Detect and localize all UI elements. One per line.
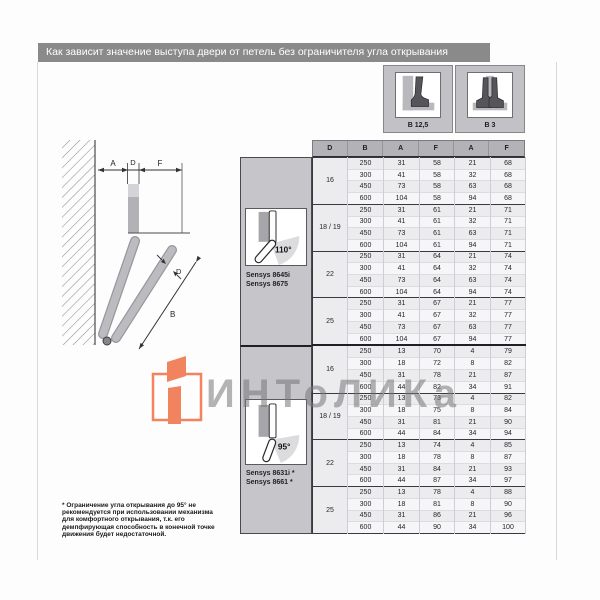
value-cell: 73 [384,181,420,193]
value-cell: 13 [384,487,420,499]
value-cell: 21 [455,416,491,428]
value-cell: 73 [384,321,420,333]
value-cell: 450 [348,275,384,287]
value-cell: 18 [384,498,420,510]
door-thickness-cell: 22 [313,251,348,298]
value-cell: 300 [348,310,384,322]
value-cell: 34 [455,475,491,487]
data-table: 1625031582168300415832684507358636860010… [312,157,526,534]
door-thickness-cell: 16 [313,158,348,205]
overlay-hinge-icon [395,72,441,118]
value-cell: 300 [348,263,384,275]
value-cell: 81 [420,498,455,510]
value-cell: 85 [491,440,526,452]
value-cell: 450 [348,370,384,382]
value-cell: 600 [348,239,384,251]
value-cell: 64 [420,251,455,263]
door-thickness-cell: 18 / 19 [313,393,348,440]
value-cell: 97 [491,475,526,487]
value-cell: 8 [455,498,491,510]
angle-110-icon: 110° [245,208,307,266]
value-cell: 44 [384,381,420,393]
value-cell: 58 [420,158,455,170]
table-row: 2525031672177 [313,298,526,310]
value-cell: 71 [491,239,526,251]
value-cell: 450 [348,321,384,333]
value-cell: 90 [491,498,526,510]
value-cell: 61 [420,239,455,251]
value-cell: 77 [491,333,526,345]
value-cell: 300 [348,405,384,417]
value-cell: 61 [420,228,455,240]
value-cell: 41 [384,169,420,181]
value-cell: 67 [420,298,455,310]
value-cell: 31 [384,204,420,216]
value-cell: 600 [348,286,384,298]
value-cell: 87 [491,370,526,382]
table-header-cell: F [489,141,524,156]
value-cell: 31 [384,298,420,310]
value-cell: 18 [384,358,420,370]
value-cell: 67 [420,333,455,345]
value-cell: 104 [384,193,420,205]
value-cell: 21 [455,251,491,263]
model-name: Sensys 8661 * [246,479,295,488]
value-cell: 250 [348,298,384,310]
hinge-variant-box-b3: B 3 [455,65,525,133]
value-cell: 64 [420,286,455,298]
value-cell: 77 [491,310,526,322]
value-cell: 86 [420,510,455,522]
value-cell: 100 [491,522,526,534]
door-thickness-cell: 25 [313,487,348,534]
value-cell: 84 [491,405,526,417]
hinge-variant-label: B 3 [456,122,524,129]
value-cell: 250 [348,158,384,170]
value-cell: 87 [420,475,455,487]
value-cell: 61 [420,216,455,228]
value-cell: 450 [348,181,384,193]
value-cell: 4 [455,345,491,357]
table-row: 18 / 1925031612171 [313,204,526,216]
value-cell: 68 [491,193,526,205]
wall-hatch [62,140,95,345]
value-cell: 44 [384,475,420,487]
value-cell: 600 [348,428,384,440]
value-cell: 21 [455,298,491,310]
value-cell: 104 [384,239,420,251]
table-header-cell: B [348,141,384,156]
value-cell: 34 [455,522,491,534]
right-margin-rule [556,62,557,560]
twin-hinge-icon [467,72,513,118]
value-cell: 78 [420,487,455,499]
value-cell: 32 [455,216,491,228]
value-cell: 8 [455,452,491,464]
table-header-cell: F [419,141,454,156]
value-cell: 63 [455,275,491,287]
value-cell: 81 [420,416,455,428]
value-cell: 13 [384,345,420,357]
value-cell: 82 [420,381,455,393]
value-cell: 68 [491,169,526,181]
value-cell: 68 [491,158,526,170]
table-row: 252501378488 [313,487,526,499]
value-cell: 64 [420,275,455,287]
angle-label-110: 110° [275,245,291,254]
value-cell: 91 [491,381,526,393]
door-projection-diagram: A D F D B [50,130,220,390]
table-row: 2225031642174 [313,251,526,263]
value-cell: 32 [455,310,491,322]
value-cell: 74 [491,263,526,275]
value-cell: 94 [455,286,491,298]
value-cell: 58 [420,181,455,193]
model-name: Sensys 8631i * [246,470,295,479]
value-cell: 34 [455,381,491,393]
value-cell: 84 [420,463,455,475]
value-cell: 74 [491,286,526,298]
value-cell: 31 [384,158,420,170]
dim-label-d-door: D [176,267,182,276]
value-cell: 74 [491,251,526,263]
angle-95-icon: 95° [245,399,307,465]
value-cell: 63 [455,181,491,193]
value-cell: 31 [384,416,420,428]
value-cell: 94 [455,193,491,205]
value-cell: 600 [348,333,384,345]
value-cell: 450 [348,416,384,428]
value-cell: 74 [491,275,526,287]
value-cell: 73 [384,228,420,240]
value-cell: 41 [384,310,420,322]
value-cell: 84 [420,428,455,440]
value-cell: 82 [491,358,526,370]
table-row: 18 / 192501373482 [313,393,526,405]
value-cell: 250 [348,204,384,216]
value-cell: 93 [491,463,526,475]
value-cell: 450 [348,463,384,475]
value-cell: 600 [348,475,384,487]
value-cell: 18 [384,405,420,417]
value-cell: 13 [384,440,420,452]
value-cell: 58 [420,193,455,205]
value-cell: 104 [384,333,420,345]
value-cell: 31 [384,463,420,475]
value-cell: 600 [348,522,384,534]
value-cell: 21 [455,463,491,475]
value-cell: 450 [348,510,384,522]
table-row: 1625031582168 [313,158,526,170]
value-cell: 87 [491,452,526,464]
table-header-cell: D [313,141,348,156]
value-cell: 44 [384,428,420,440]
value-cell: 73 [420,393,455,405]
value-cell: 250 [348,393,384,405]
value-cell: 88 [491,487,526,499]
value-cell: 58 [420,169,455,181]
value-cell: 73 [384,275,420,287]
value-cell: 300 [348,498,384,510]
value-cell: 250 [348,440,384,452]
value-cell: 300 [348,169,384,181]
value-cell: 4 [455,487,491,499]
value-cell: 4 [455,393,491,405]
table-header: DBAFAF [312,140,525,158]
value-cell: 67 [420,321,455,333]
value-cell: 250 [348,251,384,263]
value-cell: 71 [491,204,526,216]
value-cell: 300 [348,452,384,464]
hinge-variant-box-b125: B 12,5 [383,65,453,133]
value-cell: 68 [491,181,526,193]
value-cell: 250 [348,487,384,499]
catalog-page: Как зависит значение выступа двери от пе… [0,0,600,600]
value-cell: 8 [455,405,491,417]
hinge-pivot [103,337,111,345]
value-cell: 79 [491,345,526,357]
value-cell: 21 [455,204,491,216]
table-header-cell: A [383,141,419,156]
value-cell: 75 [420,405,455,417]
angle-label-95: 95° [278,442,290,451]
door-thickness-cell: 22 [313,440,348,487]
value-cell: 32 [455,169,491,181]
value-cell: 63 [455,321,491,333]
table-header-cell: A [454,141,490,156]
value-cell: 94 [455,239,491,251]
value-cell: 31 [384,510,420,522]
dim-label-a: A [110,159,116,168]
value-cell: 21 [455,510,491,522]
value-cell: 104 [384,286,420,298]
value-cell: 18 [384,452,420,464]
value-cell: 300 [348,358,384,370]
value-cell: 71 [491,216,526,228]
value-cell: 74 [420,440,455,452]
value-cell: 21 [455,158,491,170]
footnote: * Ограничение угла открывания до 95° не … [62,502,254,538]
value-cell: 34 [455,428,491,440]
value-cell: 32 [455,263,491,275]
value-cell: 61 [420,204,455,216]
value-cell: 300 [348,216,384,228]
value-cell: 71 [491,228,526,240]
value-cell: 78 [420,452,455,464]
left-margin-rule [37,62,38,560]
table-row: 222501374485 [313,440,526,452]
value-cell: 96 [491,510,526,522]
value-cell: 44 [384,522,420,534]
value-cell: 450 [348,228,384,240]
value-cell: 31 [384,251,420,263]
value-cell: 4 [455,440,491,452]
value-cell: 8 [455,358,491,370]
model-name: Sensys 8675 [246,281,290,290]
door-thickness-cell: 18 / 19 [313,204,348,251]
value-cell: 70 [420,345,455,357]
dim-label-d-top: D [130,158,136,167]
hinge-model-column: 110° Sensys 8645i Sensys 8675 95° [240,157,312,534]
hinge-variant-label: B 12,5 [384,122,452,129]
value-cell: 90 [420,522,455,534]
value-cell: 64 [420,263,455,275]
value-cell: 41 [384,263,420,275]
model-cell-110: 110° Sensys 8645i Sensys 8675 [240,157,312,346]
value-cell: 94 [455,333,491,345]
value-cell: 250 [348,345,384,357]
value-cell: 94 [491,428,526,440]
value-cell: 600 [348,193,384,205]
value-cell: 600 [348,381,384,393]
page-title: Как зависит значение выступа двери от пе… [38,43,490,62]
value-cell: 72 [420,358,455,370]
value-cell: 78 [420,370,455,382]
door-thickness-cell: 16 [313,345,348,393]
model-name: Sensys 8645i [246,272,290,281]
door-thickness-cell: 25 [313,298,348,346]
value-cell: 13 [384,393,420,405]
value-cell: 31 [384,370,420,382]
value-cell: 82 [491,393,526,405]
value-cell: 77 [491,298,526,310]
value-cell: 21 [455,370,491,382]
value-cell: 90 [491,416,526,428]
table-row: 162501370479 [313,345,526,357]
value-cell: 67 [420,310,455,322]
value-cell: 63 [455,228,491,240]
dim-label-b: B [170,310,175,319]
value-cell: 77 [491,321,526,333]
value-cell: 41 [384,216,420,228]
dim-label-f: F [158,159,163,168]
